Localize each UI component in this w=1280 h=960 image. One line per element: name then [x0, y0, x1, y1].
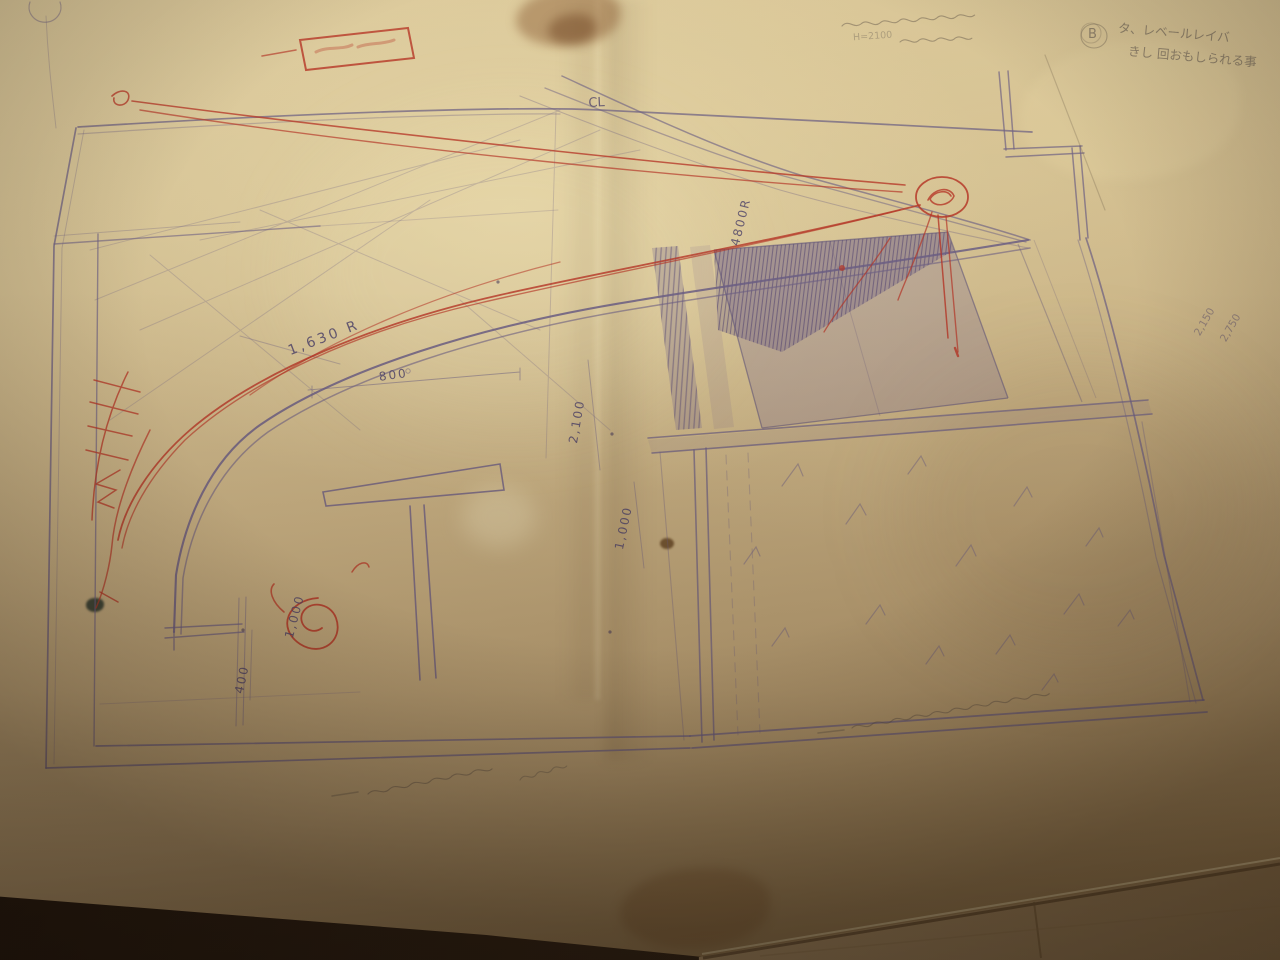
hatched-panel: [648, 232, 1152, 454]
purple-linework: [29, 2, 1207, 768]
note-circled-mark: B: [1088, 27, 1097, 42]
blueprint-photo: CL 4800R 1,630 R 800 2,100 1,000 1,000 4…: [0, 0, 1280, 960]
drawing-svg: [0, 0, 1280, 960]
paper-edge: [702, 858, 1280, 958]
centerline-label: CL: [588, 95, 605, 111]
